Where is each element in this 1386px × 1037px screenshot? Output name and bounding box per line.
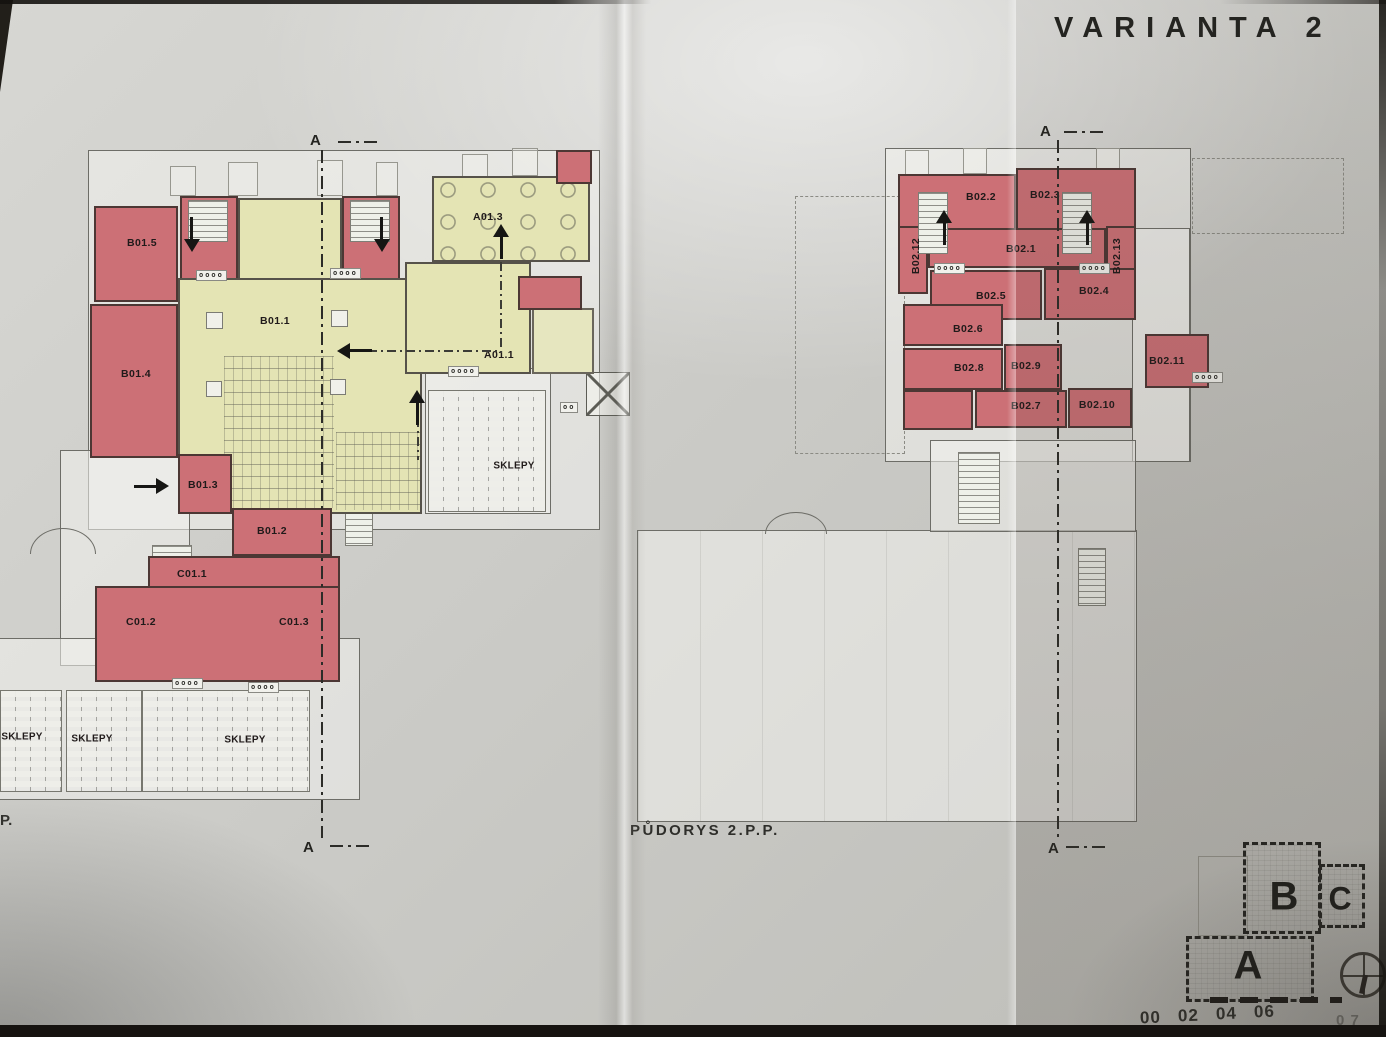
red-wc-top — [518, 276, 582, 310]
room-b01-5 — [94, 206, 178, 302]
scale-tick: 00 — [1140, 1008, 1162, 1029]
arrow-up-icon — [493, 224, 509, 260]
room-label-b02-13: B02.13 — [1111, 238, 1123, 274]
room-label-b02-9: B02.9 — [1011, 360, 1041, 372]
room-label-b02-12: B02.12 — [910, 238, 922, 274]
window-bay — [376, 162, 398, 196]
window-bay — [228, 162, 258, 196]
scale-tick: 02 — [1178, 1006, 1200, 1027]
arrow-up-icon — [1079, 210, 1095, 246]
room-label-b01-5: B01.5 — [127, 237, 157, 249]
auditorium-seat-rows — [224, 356, 334, 508]
window-bay — [905, 150, 929, 176]
room-b01-4 — [90, 304, 178, 458]
section-line-a — [321, 150, 323, 838]
circle-symbols: oooo — [1079, 263, 1110, 274]
scale-tick: 06 — [1254, 1002, 1276, 1023]
room-label-b01-1: B01.1 — [260, 315, 290, 327]
room-label-b02-11: B02.11 — [1149, 355, 1185, 367]
room-label-b02-6: B02.6 — [953, 323, 983, 335]
cellar-storage-right — [428, 390, 546, 512]
keyplan-label-b: B — [1270, 875, 1299, 920]
section-marker-a-top: A — [1040, 123, 1051, 140]
keyplan-label-c: C — [1328, 881, 1351, 918]
scale-tick: 04 — [1216, 1004, 1238, 1025]
room-label-a01-3: A01.3 — [473, 211, 503, 223]
circle-symbols: oooo — [248, 682, 279, 693]
arrow-up-icon — [936, 210, 952, 246]
arrow-left-icon — [337, 343, 373, 359]
circle-symbols: oooo — [448, 366, 479, 377]
keyplan-label-a: A — [1234, 944, 1263, 989]
section-marker-a-bottom: A — [303, 839, 314, 856]
hall-b01-1-upper — [238, 198, 342, 280]
section-elbow — [1064, 131, 1104, 133]
room-label-b02-3: B02.3 — [1030, 189, 1060, 201]
arrow-right-icon — [133, 478, 169, 494]
pillar — [331, 310, 348, 327]
photo-edge-top — [0, 0, 1386, 4]
architectural-drawing-photo: B01.5 B01.4 B01.1 B01.3 B01.2 C01.1 C01.… — [0, 0, 1386, 1037]
room-label-b02-5: B02.5 — [976, 290, 1006, 302]
sheet-title: VARIANTA 2 — [1054, 12, 1333, 45]
room-label-b02-4: B02.4 — [1079, 285, 1109, 297]
circle-symbols: oooo — [330, 268, 361, 279]
north-compass-icon — [1340, 952, 1386, 998]
section-elbow — [338, 141, 380, 143]
section-marker-a-bottom: A — [1048, 840, 1059, 857]
wc-area — [532, 308, 594, 374]
circle-symbols: oooo — [1192, 372, 1223, 383]
room-label-b02-7: B02.7 — [1011, 400, 1041, 412]
room-label-b01-3: B01.3 — [188, 479, 218, 491]
room-label-b01-4: B01.4 — [121, 368, 151, 380]
room-label-b02-1: B02.1 — [1006, 243, 1036, 255]
room-label-b02-10: B02.10 — [1079, 399, 1115, 411]
cellar-label: SKLEPY — [493, 461, 534, 472]
cafe-a01-3 — [432, 176, 590, 262]
bay-arch — [765, 512, 827, 534]
stair-lower — [1078, 548, 1106, 606]
photo-edge-corner — [0, 0, 13, 92]
right-plan-footprint-lower — [637, 530, 1137, 822]
red-corner-top-right — [556, 150, 592, 184]
cellar-label: SKLEPY — [1, 732, 42, 743]
cellar-label: SKLEPY — [224, 735, 265, 746]
arrow-up-icon — [409, 390, 425, 426]
pillar — [206, 381, 222, 397]
photo-edge-right — [1379, 0, 1386, 1037]
auditorium-seat-rows — [336, 432, 420, 510]
room-label-c01-3: C01.3 — [279, 616, 309, 628]
window-bay — [963, 148, 987, 174]
circle-symbols: oo — [560, 402, 578, 413]
photo-edge-bottom — [0, 1025, 1386, 1037]
corner-partial-text: 0 7 — [1336, 1012, 1360, 1029]
window-bay — [512, 148, 538, 176]
pillar — [206, 312, 223, 329]
fold-crease — [598, 0, 646, 1037]
stair-lower — [958, 452, 1000, 524]
route-line — [500, 262, 502, 354]
pillar — [330, 379, 346, 395]
red-filler — [903, 390, 973, 430]
section-elbow — [330, 845, 372, 847]
cut-caption-left: P. — [0, 812, 12, 829]
cellar-label: SKLEPY — [71, 734, 112, 745]
section-elbow — [1066, 846, 1106, 848]
room-label-b02-2: B02.2 — [966, 191, 996, 203]
keyplan-wing-outline — [1198, 856, 1248, 936]
section-line-a — [1057, 140, 1059, 840]
window-bay — [170, 166, 196, 196]
shaft-cross-box — [586, 372, 630, 416]
scale-bar — [1210, 997, 1342, 1003]
room-label-b02-8: B02.8 — [954, 362, 984, 374]
rooms-c01-2-c01-3 — [95, 586, 340, 682]
room-label-c01-1: C01.1 — [177, 568, 207, 580]
circle-symbols: oooo — [172, 678, 203, 689]
room-label-b01-2: B01.2 — [257, 525, 287, 537]
circle-symbols: oooo — [934, 263, 965, 274]
route-line — [368, 350, 500, 352]
arrow-down-icon — [374, 216, 390, 252]
right-plan-dashed-outline — [795, 196, 905, 454]
right-plan-dashed-outline-topright — [1192, 158, 1344, 234]
room-label-c01-2: C01.2 — [126, 616, 156, 628]
right-plan-caption: PŮDORYS 2.P.P. — [630, 822, 780, 839]
section-marker-a-top: A — [310, 132, 321, 149]
circle-symbols: oooo — [196, 270, 227, 281]
arrow-down-icon — [184, 216, 200, 252]
